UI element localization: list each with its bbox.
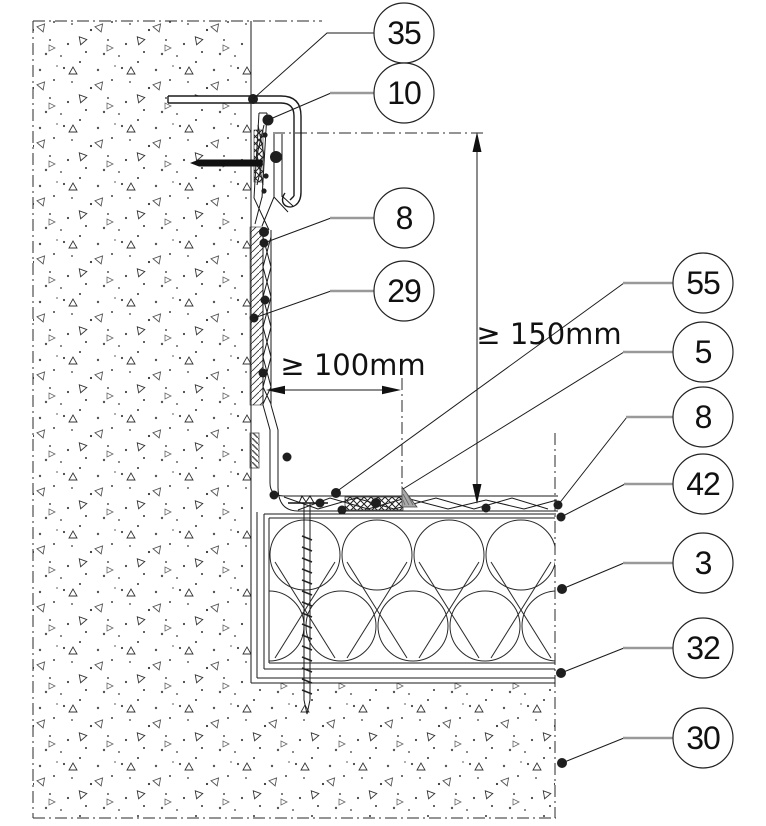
callout-35-number: 35 (387, 15, 421, 51)
callout-30: 30 (673, 708, 733, 768)
callout-55: 55 (673, 253, 733, 313)
callout-42-number: 42 (686, 466, 720, 502)
mounting-batten (250, 433, 259, 468)
callout-10-number: 10 (387, 75, 421, 111)
callout-29: 29 (374, 261, 434, 321)
dimension-vertical: ≥ 150mm (473, 132, 622, 504)
arrow-up (473, 132, 482, 152)
callout-35: 35 (374, 3, 434, 63)
drawing-canvas: ≥ 100mm ≥ 150mm 35 10 8 29 55 5 8 42 (0, 0, 766, 826)
arrow-right (382, 386, 401, 394)
sealant-wedge (402, 487, 417, 507)
callout-3-number: 3 (695, 545, 712, 581)
roof-assembly (251, 512, 556, 683)
callout-42: 42 (673, 454, 733, 514)
callout-5-number: 5 (695, 334, 712, 370)
membrane-fold (254, 196, 293, 230)
wall-anchor-screw (190, 160, 262, 167)
detail-drawing-svg: ≥ 100mm ≥ 150mm 35 10 8 29 55 5 8 42 (0, 0, 766, 826)
callout-8-wall-number: 8 (396, 200, 413, 236)
callout-55-number: 55 (686, 265, 720, 301)
callout-8-roof-number: 8 (695, 399, 712, 435)
fixing-channel (274, 134, 282, 197)
termination-bar (254, 130, 263, 182)
callout-32: 32 (673, 618, 733, 678)
callout-32-number: 32 (686, 630, 720, 666)
callout-29-number: 29 (387, 273, 421, 309)
dimension-150mm-label: ≥ 150mm (476, 317, 621, 351)
arrow-left (266, 386, 285, 394)
dimension-100mm-label: ≥ 100mm (280, 348, 425, 382)
callout-30-number: 30 (686, 720, 720, 756)
callout-8-wall: 8 (374, 188, 434, 248)
callout-10: 10 (374, 63, 434, 123)
screw-head (299, 496, 314, 503)
callout-5: 5 (673, 322, 733, 382)
callout-8-roof: 8 (673, 387, 733, 447)
callout-3: 3 (673, 533, 733, 593)
